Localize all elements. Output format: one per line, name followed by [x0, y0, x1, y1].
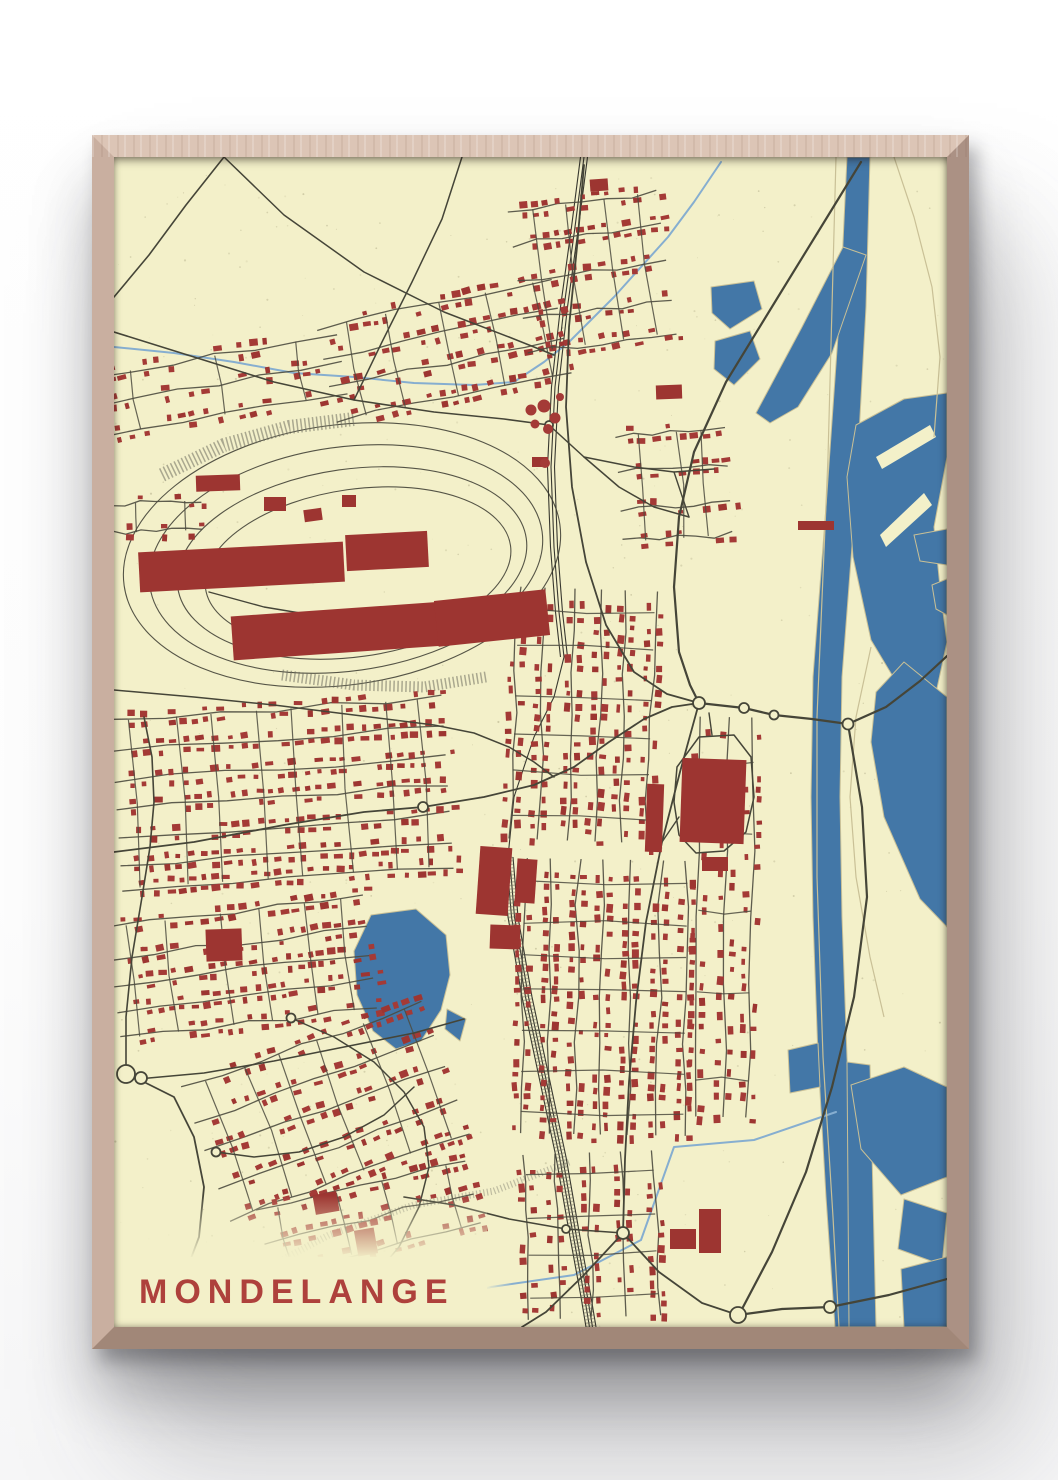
- building: [318, 961, 324, 967]
- building: [330, 757, 336, 761]
- building: [250, 882, 259, 889]
- building: [756, 832, 761, 838]
- building: [308, 827, 316, 832]
- building: [175, 864, 182, 869]
- building: [196, 748, 204, 752]
- building: [161, 524, 167, 528]
- building: [591, 1139, 596, 1144]
- building: [662, 904, 669, 911]
- building: [647, 1194, 653, 1199]
- building: [547, 689, 553, 695]
- building: [662, 1023, 668, 1028]
- building: [592, 1074, 597, 1082]
- building: [567, 991, 573, 998]
- building: [580, 601, 585, 609]
- large-building: [514, 858, 537, 903]
- building: [644, 254, 650, 259]
- building: [576, 690, 582, 697]
- building: [534, 725, 540, 732]
- building: [208, 963, 215, 969]
- roundabout: [739, 703, 749, 713]
- building: [588, 802, 594, 810]
- building: [650, 216, 656, 220]
- building: [630, 616, 636, 622]
- building: [560, 798, 567, 805]
- building: [580, 875, 587, 879]
- building: [179, 718, 187, 725]
- building: [374, 735, 382, 741]
- building: [558, 1236, 564, 1243]
- building: [515, 1002, 519, 1007]
- building: [467, 361, 476, 367]
- building: [403, 332, 410, 339]
- building: [274, 856, 282, 862]
- building: [754, 864, 761, 870]
- building: [349, 932, 357, 938]
- building: [464, 298, 472, 306]
- building: [742, 891, 749, 897]
- building: [376, 998, 381, 1002]
- building: [328, 986, 335, 990]
- building: [376, 782, 383, 786]
- building: [569, 900, 574, 907]
- building: [687, 1083, 693, 1091]
- building: [133, 855, 139, 861]
- building: [522, 212, 527, 218]
- building: [605, 994, 610, 1001]
- building: [401, 819, 409, 826]
- building: [630, 625, 635, 630]
- building: [295, 740, 304, 745]
- building: [249, 338, 258, 346]
- building: [505, 739, 511, 744]
- building: [718, 503, 727, 510]
- building: [531, 755, 536, 761]
- building: [259, 799, 264, 805]
- building: [728, 1026, 734, 1034]
- building: [650, 968, 656, 973]
- building: [443, 869, 447, 876]
- building: [650, 498, 657, 505]
- building: [315, 369, 320, 374]
- building: [321, 698, 327, 705]
- building: [354, 984, 360, 989]
- building: [622, 930, 629, 937]
- building: [308, 738, 315, 743]
- building: [545, 341, 551, 347]
- large-building: [490, 924, 521, 949]
- building: [531, 1283, 538, 1288]
- roundabout: [117, 1065, 135, 1083]
- building: [373, 724, 381, 729]
- building: [569, 601, 574, 609]
- building: [143, 749, 151, 756]
- building: [362, 724, 366, 731]
- building: [188, 534, 194, 540]
- building: [456, 856, 461, 863]
- building: [405, 873, 409, 878]
- building: [622, 941, 627, 948]
- building: [542, 781, 548, 787]
- building: [550, 1118, 557, 1122]
- building: [727, 1049, 732, 1054]
- building: [606, 1007, 610, 1014]
- building: [689, 946, 696, 955]
- round-structure: [540, 458, 550, 468]
- round-structure: [538, 400, 551, 413]
- building: [505, 749, 509, 758]
- building: [361, 823, 369, 830]
- roundabout: [562, 1225, 570, 1233]
- building: [714, 467, 719, 473]
- building: [129, 799, 136, 805]
- large-building: [670, 1229, 696, 1249]
- building: [377, 792, 384, 798]
- building: [563, 782, 567, 789]
- building: [576, 227, 585, 233]
- building: [348, 736, 355, 741]
- building: [716, 976, 724, 985]
- building: [589, 348, 595, 353]
- building: [537, 637, 542, 644]
- building: [756, 821, 762, 825]
- building: [678, 336, 683, 340]
- building: [693, 468, 700, 474]
- building: [675, 1134, 679, 1142]
- building: [501, 819, 508, 828]
- building: [321, 894, 325, 898]
- building: [169, 720, 177, 726]
- building: [252, 762, 259, 768]
- building: [574, 753, 580, 761]
- building: [189, 876, 196, 880]
- building: [359, 705, 367, 712]
- building: [566, 1002, 573, 1010]
- building: [258, 818, 265, 824]
- building: [328, 975, 332, 981]
- building: [374, 321, 379, 326]
- building: [338, 345, 343, 350]
- building: [542, 797, 546, 804]
- building: [697, 1105, 705, 1112]
- building: [251, 848, 255, 853]
- building: [288, 966, 293, 973]
- building: [539, 1131, 545, 1139]
- building: [650, 1280, 655, 1289]
- building: [441, 400, 448, 407]
- building: [202, 503, 207, 509]
- large-building: [699, 1209, 721, 1253]
- building: [575, 704, 582, 711]
- building: [439, 731, 447, 736]
- building: [699, 1024, 704, 1030]
- building: [666, 530, 672, 537]
- building: [595, 1033, 599, 1038]
- building: [687, 1106, 691, 1112]
- building: [652, 776, 659, 784]
- building: [519, 647, 527, 656]
- building: [689, 432, 698, 439]
- building: [673, 1111, 680, 1120]
- building: [741, 983, 746, 991]
- building: [678, 899, 685, 905]
- building: [613, 765, 617, 773]
- building: [615, 756, 620, 762]
- building: [388, 862, 393, 869]
- building: [153, 356, 159, 363]
- roundabout: [418, 802, 428, 812]
- building: [567, 1101, 574, 1106]
- building: [561, 820, 566, 826]
- building: [338, 974, 344, 979]
- building: [663, 933, 668, 940]
- building: [689, 998, 693, 1006]
- building: [538, 1065, 544, 1073]
- building: [696, 1116, 702, 1125]
- building: [757, 796, 762, 803]
- building: [566, 1131, 572, 1139]
- building: [653, 903, 660, 912]
- building: [127, 710, 134, 716]
- building: [541, 995, 546, 1004]
- building: [235, 961, 242, 966]
- building: [567, 617, 573, 623]
- building: [510, 308, 518, 315]
- building: [551, 1011, 557, 1017]
- building: [226, 990, 235, 994]
- large-building: [590, 178, 609, 191]
- building: [606, 892, 612, 897]
- building: [526, 966, 533, 972]
- building: [612, 332, 617, 337]
- building: [727, 1069, 732, 1077]
- building: [568, 966, 575, 973]
- building: [577, 1100, 583, 1107]
- building: [739, 1081, 746, 1087]
- building: [336, 866, 344, 873]
- building: [717, 1012, 723, 1020]
- building: [593, 1088, 598, 1095]
- building: [604, 1033, 608, 1037]
- building: [700, 961, 706, 967]
- building: [621, 981, 626, 990]
- building: [416, 836, 421, 841]
- building: [744, 854, 748, 860]
- building: [677, 946, 684, 953]
- building: [566, 691, 570, 696]
- building: [505, 712, 511, 721]
- building: [703, 434, 711, 439]
- roundabout: [843, 719, 854, 730]
- building: [315, 785, 321, 790]
- building: [543, 964, 549, 972]
- building: [529, 1185, 534, 1190]
- building: [629, 1135, 633, 1144]
- building: [546, 726, 551, 732]
- building: [527, 926, 531, 931]
- large-building: [798, 521, 834, 530]
- building: [372, 852, 379, 857]
- building: [564, 702, 571, 711]
- building: [651, 1011, 656, 1018]
- building: [553, 1038, 559, 1042]
- building: [754, 845, 760, 849]
- building: [705, 729, 711, 737]
- building: [531, 741, 538, 747]
- building: [619, 614, 625, 623]
- building: [240, 732, 248, 739]
- building: [251, 945, 257, 950]
- building: [605, 605, 611, 614]
- building: [238, 902, 247, 910]
- building: [577, 1133, 583, 1139]
- building: [542, 823, 547, 830]
- building: [713, 1115, 720, 1124]
- building: [598, 767, 604, 776]
- building: [597, 802, 605, 811]
- building: [203, 716, 209, 722]
- building: [505, 729, 512, 734]
- building: [440, 690, 446, 694]
- building: [594, 1253, 599, 1260]
- building: [307, 867, 313, 872]
- building: [751, 1095, 755, 1099]
- page-root: { "poster": { "title": "MONDELANGE", "ti…: [0, 0, 1058, 1480]
- building: [648, 1183, 652, 1189]
- building: [238, 860, 243, 866]
- building: [702, 457, 708, 464]
- building: [596, 1276, 601, 1282]
- building: [633, 876, 639, 882]
- building: [421, 763, 426, 768]
- building: [622, 918, 628, 925]
- building: [542, 232, 549, 238]
- building: [596, 841, 603, 846]
- building: [202, 706, 207, 710]
- building: [554, 944, 560, 952]
- roundabout: [287, 1014, 296, 1023]
- poster-frame: MONDELANGE: [92, 135, 969, 1349]
- large-building: [345, 531, 429, 571]
- building: [574, 782, 578, 788]
- building: [617, 665, 621, 670]
- building: [229, 745, 234, 749]
- building: [624, 780, 630, 785]
- building: [714, 1080, 719, 1087]
- building: [448, 846, 452, 852]
- building: [207, 803, 213, 808]
- building: [196, 778, 204, 784]
- building: [589, 737, 596, 746]
- building: [179, 1005, 184, 1010]
- building: [451, 805, 459, 810]
- building: [335, 934, 342, 939]
- building: [576, 655, 582, 663]
- building: [597, 818, 602, 826]
- building: [169, 739, 177, 743]
- building: [429, 858, 433, 865]
- building: [169, 780, 174, 786]
- round-structure: [556, 393, 564, 401]
- large-building: [205, 928, 242, 961]
- building: [690, 880, 696, 888]
- building: [530, 824, 535, 829]
- building: [349, 876, 355, 881]
- building: [211, 745, 220, 752]
- building: [158, 914, 163, 918]
- building: [571, 889, 575, 896]
- building: [491, 357, 499, 363]
- building: [662, 1036, 668, 1044]
- building: [567, 1042, 572, 1046]
- building: [688, 1047, 693, 1053]
- building: [317, 796, 322, 800]
- building: [238, 403, 243, 408]
- building: [685, 1097, 692, 1106]
- building: [514, 809, 520, 814]
- building: [572, 807, 578, 815]
- building: [630, 650, 636, 657]
- building: [661, 1301, 667, 1307]
- building: [305, 786, 311, 791]
- building: [621, 259, 628, 265]
- building: [238, 775, 246, 779]
- building: [662, 1291, 666, 1296]
- building: [621, 200, 626, 206]
- building: [729, 883, 734, 891]
- building: [146, 999, 151, 1005]
- building: [666, 436, 672, 440]
- building: [699, 998, 705, 1006]
- building: [334, 854, 343, 859]
- building: [741, 1051, 747, 1058]
- building: [242, 703, 246, 708]
- building: [632, 931, 639, 937]
- building: [216, 706, 224, 710]
- building: [387, 811, 394, 815]
- building: [551, 1051, 557, 1058]
- building: [500, 834, 507, 843]
- building: [360, 736, 369, 741]
- building: [518, 1183, 525, 1192]
- building: [383, 704, 392, 711]
- building: [224, 849, 231, 854]
- building: [665, 892, 670, 900]
- building: [410, 731, 418, 738]
- building: [725, 1093, 732, 1100]
- city-map: [114, 157, 947, 1327]
- building: [603, 1087, 610, 1096]
- building: [131, 809, 136, 815]
- building: [564, 654, 571, 663]
- building: [548, 663, 553, 672]
- building: [544, 872, 549, 879]
- building: [203, 408, 209, 414]
- building: [346, 697, 352, 702]
- building: [578, 338, 583, 343]
- building: [531, 273, 538, 279]
- building: [605, 969, 611, 977]
- building: [403, 790, 409, 797]
- building: [201, 990, 210, 996]
- building: [715, 1060, 721, 1065]
- building: [618, 187, 624, 192]
- building: [585, 829, 592, 834]
- building: [154, 890, 160, 896]
- building: [194, 794, 202, 799]
- building: [414, 779, 421, 783]
- building: [440, 776, 446, 783]
